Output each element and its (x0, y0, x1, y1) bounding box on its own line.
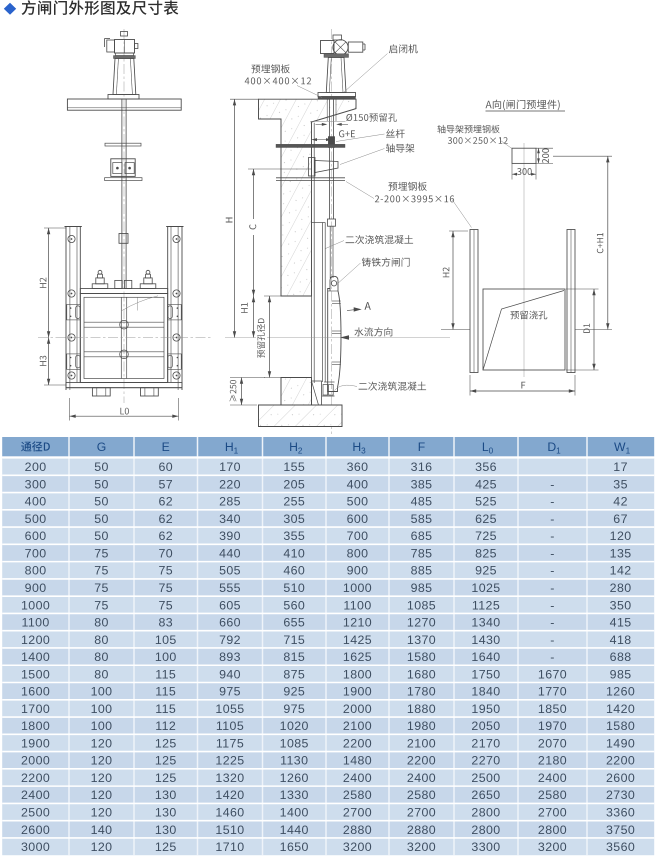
svg-text:2400: 2400 (407, 771, 436, 785)
svg-text:42: 42 (613, 495, 628, 509)
svg-text:355: 355 (283, 529, 305, 543)
svg-text:1400: 1400 (280, 806, 309, 820)
svg-text:1900: 1900 (21, 736, 50, 750)
svg-text:1980: 1980 (407, 719, 436, 733)
svg-text:975: 975 (219, 685, 241, 699)
svg-text:440: 440 (219, 547, 241, 561)
svg-text:80: 80 (94, 616, 109, 630)
svg-text:120: 120 (610, 529, 632, 543)
svg-text:35: 35 (613, 477, 628, 491)
svg-text:-: - (550, 564, 555, 578)
svg-text:2600: 2600 (606, 771, 635, 785)
svg-text:50: 50 (94, 495, 109, 509)
svg-text:285: 285 (219, 495, 241, 509)
svg-text:220: 220 (219, 477, 241, 491)
svg-text:1210: 1210 (343, 616, 372, 630)
svg-text:112: 112 (155, 719, 176, 733)
svg-text:985: 985 (610, 667, 632, 681)
svg-text:875: 875 (283, 667, 305, 681)
svg-text:3300: 3300 (471, 840, 500, 854)
svg-text:1420: 1420 (215, 788, 244, 802)
svg-text:80: 80 (94, 650, 109, 664)
svg-text:1900: 1900 (343, 685, 372, 699)
svg-text:350: 350 (610, 598, 632, 612)
svg-text:975: 975 (283, 702, 305, 716)
svg-text:75: 75 (158, 581, 173, 595)
svg-text:925: 925 (283, 685, 305, 699)
svg-text:688: 688 (610, 650, 632, 664)
svg-text:75: 75 (94, 581, 109, 595)
svg-text:67: 67 (613, 512, 628, 526)
svg-text:1100: 1100 (343, 598, 371, 612)
svg-text:815: 815 (283, 650, 305, 664)
svg-text:1100: 1100 (21, 616, 49, 630)
svg-text:255: 255 (283, 495, 305, 509)
svg-text:2700: 2700 (538, 806, 567, 820)
svg-text:1640: 1640 (471, 650, 500, 664)
svg-text:-: - (550, 633, 555, 647)
svg-text:1840: 1840 (471, 685, 500, 699)
svg-text:700: 700 (25, 547, 47, 561)
svg-text:140: 140 (91, 823, 113, 837)
svg-text:3360: 3360 (606, 806, 635, 820)
svg-text:3750: 3750 (606, 823, 635, 837)
svg-text:1425: 1425 (343, 633, 372, 647)
svg-text:3000: 3000 (21, 840, 50, 854)
svg-text:2070: 2070 (538, 736, 567, 750)
svg-text:1260: 1260 (280, 771, 309, 785)
svg-text:1340: 1340 (471, 616, 500, 630)
svg-text:1430: 1430 (471, 633, 500, 647)
svg-text:1770: 1770 (538, 685, 567, 699)
svg-text:2100: 2100 (407, 736, 436, 750)
svg-text:510: 510 (283, 581, 305, 595)
svg-text:2200: 2200 (606, 754, 635, 768)
svg-text:300: 300 (25, 477, 47, 491)
svg-text:75: 75 (94, 547, 109, 561)
svg-text:1680: 1680 (407, 667, 436, 681)
svg-text:1625: 1625 (343, 650, 372, 664)
svg-text:390: 390 (219, 529, 241, 543)
svg-text:1085: 1085 (280, 736, 309, 750)
svg-text:800: 800 (347, 547, 369, 561)
svg-text:2700: 2700 (407, 806, 436, 820)
svg-text:925: 925 (475, 564, 497, 578)
svg-text:2650: 2650 (471, 788, 500, 802)
svg-text:1440: 1440 (280, 823, 309, 837)
svg-text:885: 885 (411, 564, 433, 578)
svg-text:75: 75 (94, 598, 109, 612)
svg-text:1800: 1800 (343, 667, 372, 681)
svg-text:415: 415 (610, 616, 632, 630)
svg-text:485: 485 (411, 495, 433, 509)
svg-text:60: 60 (158, 460, 173, 474)
svg-text:985: 985 (411, 581, 433, 595)
svg-text:-: - (550, 547, 555, 561)
svg-text:400: 400 (347, 477, 369, 491)
svg-text:1950: 1950 (471, 702, 500, 716)
svg-text:660: 660 (219, 616, 241, 630)
svg-text:125: 125 (155, 771, 177, 785)
svg-text:1750: 1750 (471, 667, 500, 681)
svg-text:1400: 1400 (21, 650, 50, 664)
svg-text:560: 560 (283, 598, 305, 612)
svg-text:725: 725 (475, 529, 497, 543)
svg-text:142: 142 (610, 564, 632, 578)
svg-text:2800: 2800 (538, 823, 567, 837)
svg-text:1700: 1700 (21, 702, 50, 716)
svg-text:120: 120 (91, 806, 113, 820)
svg-text:120: 120 (91, 736, 113, 750)
svg-text:-: - (550, 581, 555, 595)
svg-text:2200: 2200 (21, 771, 50, 785)
svg-text:E: E (162, 440, 170, 454)
svg-text:2800: 2800 (471, 823, 500, 837)
svg-text:125: 125 (155, 840, 177, 854)
svg-text:1105: 1105 (216, 719, 244, 733)
svg-text:1460: 1460 (215, 806, 244, 820)
svg-text:170: 170 (219, 460, 241, 474)
svg-text:700: 700 (347, 529, 369, 543)
svg-text:1175: 1175 (216, 736, 244, 750)
svg-text:2400: 2400 (343, 771, 372, 785)
svg-text:50: 50 (94, 529, 109, 543)
svg-text:655: 655 (283, 616, 305, 630)
svg-text:600: 600 (347, 512, 369, 526)
svg-text:1650: 1650 (280, 840, 309, 854)
svg-text:505: 505 (219, 564, 241, 578)
svg-text:1370: 1370 (407, 633, 436, 647)
svg-text:-: - (550, 650, 555, 664)
svg-text:600: 600 (25, 529, 47, 543)
svg-text:385: 385 (411, 477, 433, 491)
svg-text:785: 785 (411, 547, 433, 561)
svg-text:115: 115 (155, 685, 176, 699)
svg-text:500: 500 (347, 495, 369, 509)
svg-text:2800: 2800 (471, 806, 500, 820)
svg-text:75: 75 (158, 564, 173, 578)
svg-text:205: 205 (283, 477, 305, 491)
svg-text:62: 62 (158, 512, 173, 526)
svg-text:360: 360 (347, 460, 369, 474)
svg-text:2580: 2580 (343, 788, 372, 802)
svg-text:2180: 2180 (538, 754, 567, 768)
svg-text:410: 410 (283, 547, 305, 561)
svg-text:83: 83 (158, 616, 173, 630)
svg-text:1085: 1085 (407, 598, 436, 612)
svg-text:2880: 2880 (407, 823, 436, 837)
svg-text:2200: 2200 (407, 754, 436, 768)
svg-text:2270: 2270 (471, 754, 500, 768)
svg-text:62: 62 (158, 529, 173, 543)
svg-text:792: 792 (219, 633, 241, 647)
svg-text:-: - (550, 477, 555, 491)
svg-text:17: 17 (613, 460, 628, 474)
svg-text:-: - (550, 598, 555, 612)
svg-text:1000: 1000 (343, 581, 372, 595)
svg-text:685: 685 (411, 529, 433, 543)
svg-text:1225: 1225 (215, 754, 244, 768)
svg-text:1580: 1580 (606, 719, 635, 733)
svg-text:100: 100 (155, 650, 177, 664)
svg-text:400: 400 (25, 495, 47, 509)
svg-text:1780: 1780 (407, 685, 436, 699)
svg-text:1600: 1600 (21, 685, 50, 699)
svg-text:1125: 1125 (472, 598, 500, 612)
svg-text:2000: 2000 (343, 702, 372, 716)
svg-text:425: 425 (475, 477, 497, 491)
svg-text:2200: 2200 (343, 736, 372, 750)
svg-text:625: 625 (475, 512, 497, 526)
svg-text:1880: 1880 (407, 702, 436, 716)
svg-text:100: 100 (91, 702, 113, 716)
svg-text:G: G (97, 440, 106, 454)
svg-text:155: 155 (283, 460, 305, 474)
svg-text:120: 120 (91, 840, 113, 854)
svg-text:2600: 2600 (21, 823, 50, 837)
svg-text:2580: 2580 (407, 788, 436, 802)
svg-text:1330: 1330 (280, 788, 309, 802)
svg-text:2700: 2700 (343, 806, 372, 820)
svg-text:900: 900 (347, 564, 369, 578)
svg-text:F: F (418, 440, 425, 454)
svg-text:1500: 1500 (21, 667, 50, 681)
svg-text:893: 893 (219, 650, 241, 664)
svg-text:2000: 2000 (21, 754, 50, 768)
svg-text:1200: 1200 (21, 633, 50, 647)
svg-text:1420: 1420 (606, 702, 635, 716)
svg-text:3200: 3200 (407, 840, 436, 854)
svg-text:1270: 1270 (407, 616, 436, 630)
svg-text:130: 130 (155, 788, 177, 802)
svg-text:125: 125 (155, 754, 177, 768)
svg-text:2400: 2400 (21, 788, 50, 802)
svg-text:2500: 2500 (21, 806, 50, 820)
svg-text:125: 125 (155, 736, 177, 750)
svg-text:1970: 1970 (538, 719, 567, 733)
svg-text:1850: 1850 (538, 702, 567, 716)
svg-text:418: 418 (610, 633, 632, 647)
svg-text:555: 555 (219, 581, 241, 595)
svg-text:2580: 2580 (538, 788, 567, 802)
svg-text:1130: 1130 (280, 754, 308, 768)
svg-text:1055: 1055 (215, 702, 244, 716)
svg-text:62: 62 (158, 495, 173, 509)
svg-text:75: 75 (158, 598, 173, 612)
svg-text:75: 75 (94, 564, 109, 578)
svg-text:715: 715 (283, 633, 305, 647)
svg-text:800: 800 (25, 564, 47, 578)
svg-text:-: - (550, 495, 555, 509)
svg-text:280: 280 (610, 581, 632, 595)
svg-text:115: 115 (155, 667, 176, 681)
svg-text:2500: 2500 (471, 771, 500, 785)
svg-text:120: 120 (91, 754, 113, 768)
svg-text:2100: 2100 (343, 719, 372, 733)
svg-text:115: 115 (155, 702, 176, 716)
svg-text:1580: 1580 (407, 650, 436, 664)
svg-text:80: 80 (94, 633, 109, 647)
svg-text:500: 500 (25, 512, 47, 526)
svg-text:200: 200 (25, 460, 47, 474)
svg-text:1490: 1490 (606, 736, 635, 750)
svg-text:135: 135 (610, 547, 632, 561)
svg-text:120: 120 (91, 771, 113, 785)
svg-text:3200: 3200 (538, 840, 567, 854)
svg-text:316: 316 (411, 460, 433, 474)
svg-text:340: 340 (219, 512, 241, 526)
svg-text:825: 825 (475, 547, 497, 561)
svg-text:50: 50 (94, 477, 109, 491)
svg-text:2880: 2880 (343, 823, 372, 837)
svg-text:585: 585 (411, 512, 433, 526)
svg-text:1670: 1670 (538, 667, 567, 681)
svg-text:100: 100 (91, 719, 113, 733)
svg-text:305: 305 (283, 512, 305, 526)
svg-text:460: 460 (283, 564, 305, 578)
svg-text:-: - (550, 512, 555, 526)
svg-text:3200: 3200 (343, 840, 372, 854)
svg-text:2400: 2400 (538, 771, 567, 785)
svg-text:130: 130 (155, 823, 177, 837)
svg-text:50: 50 (94, 512, 109, 526)
svg-text:3560: 3560 (606, 840, 635, 854)
svg-text:1000: 1000 (21, 598, 50, 612)
svg-text:525: 525 (475, 495, 497, 509)
svg-text:1260: 1260 (606, 685, 635, 699)
svg-text:2730: 2730 (606, 788, 635, 802)
svg-text:70: 70 (158, 547, 173, 561)
svg-text:1510: 1510 (215, 823, 244, 837)
svg-text:120: 120 (91, 788, 113, 802)
svg-text:1320: 1320 (215, 771, 244, 785)
svg-text:1020: 1020 (280, 719, 309, 733)
svg-text:1800: 1800 (21, 719, 50, 733)
svg-text:2170: 2170 (471, 736, 500, 750)
svg-text:130: 130 (155, 806, 177, 820)
svg-text:900: 900 (25, 581, 47, 595)
svg-text:1710: 1710 (215, 840, 244, 854)
svg-text:356: 356 (475, 460, 497, 474)
svg-text:1480: 1480 (343, 754, 372, 768)
svg-text:50: 50 (94, 460, 109, 474)
svg-text:100: 100 (91, 685, 113, 699)
svg-text:940: 940 (219, 667, 241, 681)
svg-text:1025: 1025 (471, 581, 500, 595)
svg-text:2050: 2050 (471, 719, 500, 733)
svg-text:-: - (550, 529, 555, 543)
svg-text:80: 80 (94, 667, 109, 681)
svg-text:-: - (550, 616, 555, 630)
svg-text:57: 57 (158, 477, 173, 491)
svg-text:605: 605 (219, 598, 241, 612)
svg-text:105: 105 (155, 633, 177, 647)
